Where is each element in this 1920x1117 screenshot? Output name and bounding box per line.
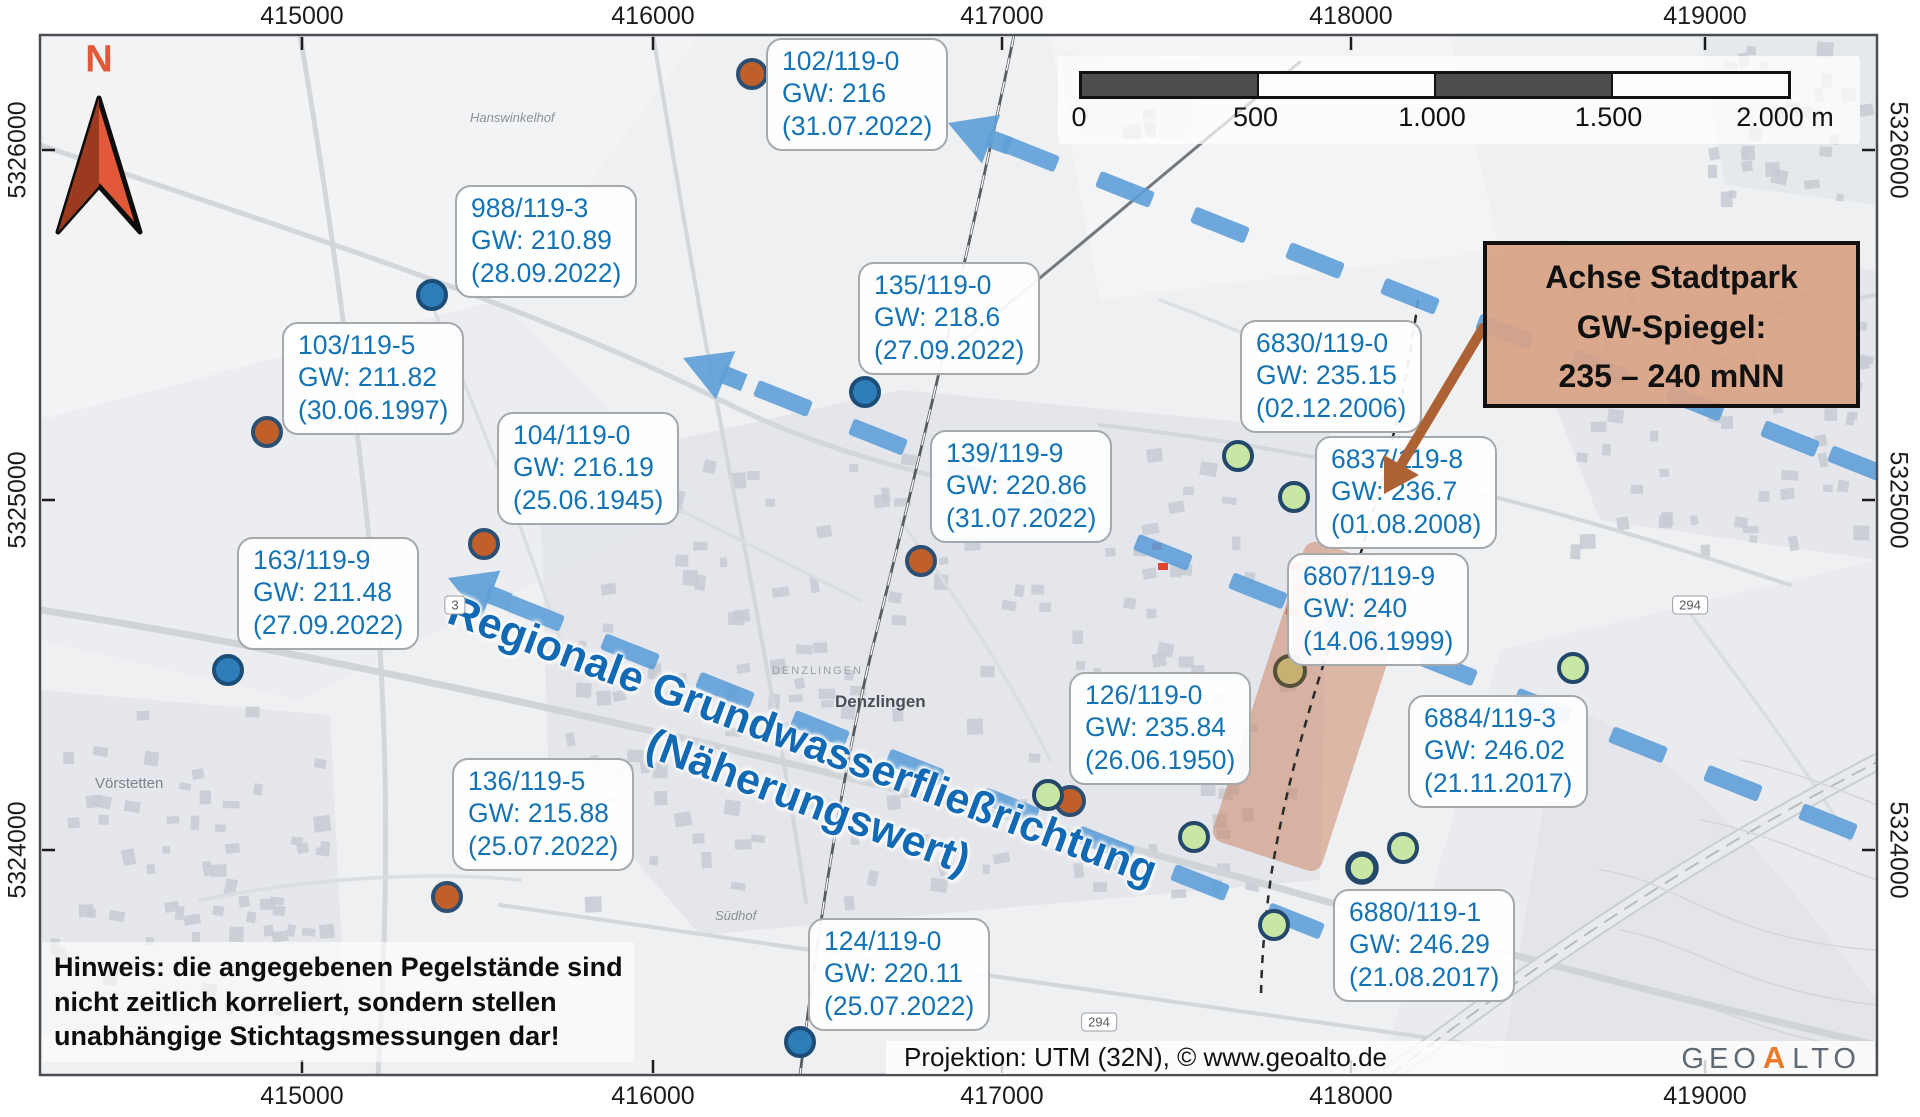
scalebar-segment xyxy=(1259,74,1436,96)
achse-line2: GW-Spiegel: xyxy=(1487,303,1856,353)
axis-x-label: 417000 xyxy=(960,2,1043,31)
station-label: 135/119-0 GW: 218.6 (27.09.2022) xyxy=(858,262,1040,375)
attribution-bar: Projektion: UTM (32N), © www.geoalto.de … xyxy=(886,1041,1875,1074)
projection-attribution: Projektion: UTM (32N), © www.geoalto.de xyxy=(904,1042,1387,1073)
station-label: 103/119-5 GW: 211.82 (30.06.1997) xyxy=(282,322,464,435)
geoalto-logo: GEO A LTO xyxy=(1681,1040,1861,1076)
axis-y-label: 5324000 xyxy=(1884,801,1913,898)
road-badge: 3 xyxy=(444,596,465,615)
station-gw: GW: 246.02 xyxy=(1424,734,1572,766)
achse-stadtpark-box: Achse Stadtpark GW-Spiegel: 235 – 240 mN… xyxy=(1483,241,1860,408)
station-gw: GW: 211.48 xyxy=(253,576,403,608)
station-date: (25.07.2022) xyxy=(468,830,618,862)
station-id: 124/119-0 xyxy=(824,925,974,957)
place-label: Vörstetten xyxy=(95,775,163,792)
station-gw: GW: 211.82 xyxy=(298,361,448,393)
axis-x-label: 418000 xyxy=(1309,2,1392,31)
logo-geo: GEO xyxy=(1681,1043,1760,1076)
station-id: 6807/119-9 xyxy=(1303,560,1453,592)
station-label: 163/119-9 GW: 211.48 (27.09.2022) xyxy=(237,537,419,650)
scalebar-segment xyxy=(1436,74,1613,96)
station-label: 139/119-9 GW: 220.86 (31.07.2022) xyxy=(930,430,1112,543)
station-id: 139/119-9 xyxy=(946,437,1096,469)
station-label: 124/119-0 GW: 220.11 (25.07.2022) xyxy=(808,918,990,1031)
road-badge: 294 xyxy=(1081,1013,1117,1032)
note-line2: nicht zeitlich korreliert, sondern stell… xyxy=(54,985,622,1020)
station-gw: GW: 216 xyxy=(782,77,932,109)
station-label: 126/119-0 GW: 235.84 (26.06.1950) xyxy=(1069,672,1251,785)
station-date: (30.06.1997) xyxy=(298,394,448,426)
axis-x-label: 419000 xyxy=(1663,2,1746,31)
station-date: (01.08.2008) xyxy=(1331,508,1481,540)
station-id: 988/119-3 xyxy=(471,192,621,224)
note-panel: Hinweis: die angegebenen Pegelstände sin… xyxy=(42,942,634,1062)
axis-y-label: 5325000 xyxy=(1884,451,1913,548)
station-label: 6807/119-9 GW: 240 (14.06.1999) xyxy=(1287,553,1469,666)
axis-x-label: 418000 xyxy=(1309,1082,1392,1111)
station-date: (21.08.2017) xyxy=(1349,961,1499,993)
axis-y-label: 5326000 xyxy=(4,101,33,198)
station-id: 104/119-0 xyxy=(513,419,663,451)
station-id: 6837/119-8 xyxy=(1331,443,1481,475)
station-id: 6880/119-1 xyxy=(1349,896,1499,928)
station-label: 136/119-5 GW: 215.88 (25.07.2022) xyxy=(452,758,634,871)
station-date: (25.06.1945) xyxy=(513,484,663,516)
axis-y-label: 5324000 xyxy=(4,801,33,898)
station-gw: GW: 220.11 xyxy=(824,957,974,989)
axis-y-label: 5325000 xyxy=(4,451,33,548)
axis-x-label: 415000 xyxy=(260,2,343,31)
station-date: (31.07.2022) xyxy=(946,502,1096,534)
station-gw: GW: 235.15 xyxy=(1256,359,1406,391)
station-date: (25.07.2022) xyxy=(824,990,974,1022)
station-id: 163/119-9 xyxy=(253,544,403,576)
logo-a-icon: A xyxy=(1763,1040,1790,1076)
scalebar-label: 1.500 xyxy=(1575,102,1643,133)
station-gw: GW: 218.6 xyxy=(874,301,1024,333)
station-gw: GW: 235.84 xyxy=(1085,711,1235,743)
station-label: 6830/119-0 GW: 235.15 (02.12.2006) xyxy=(1240,320,1422,433)
station-gw: GW: 246.29 xyxy=(1349,928,1499,960)
scalebar-segment xyxy=(1082,74,1259,96)
station-date: (31.07.2022) xyxy=(782,110,932,142)
north-label: N xyxy=(85,39,112,82)
note-line1: Hinweis: die angegebenen Pegelstände sin… xyxy=(54,950,622,985)
place-label: DENZLINGEN xyxy=(772,665,863,677)
map-screenshot: N Regionale Grundwasserfließrichtung (Nä… xyxy=(0,0,1920,1117)
station-id: 6884/119-3 xyxy=(1424,702,1572,734)
station-date: (14.06.1999) xyxy=(1303,625,1453,657)
scalebar-label: 2.000 m xyxy=(1736,102,1834,133)
station-label: 6837/119-8 GW: 236.7 (01.08.2008) xyxy=(1315,436,1497,549)
station-id: 136/119-5 xyxy=(468,765,618,797)
station-label: 6880/119-1 GW: 246.29 (21.08.2017) xyxy=(1333,889,1515,1002)
scalebar-bar xyxy=(1079,71,1791,99)
station-label: 102/119-0 GW: 216 (31.07.2022) xyxy=(766,38,948,151)
station-label: 988/119-3 GW: 210.89 (28.09.2022) xyxy=(455,185,637,298)
station-date: (27.09.2022) xyxy=(253,609,403,641)
station-id: 6830/119-0 xyxy=(1256,327,1406,359)
scalebar-segment xyxy=(1613,74,1788,96)
station-date: (02.12.2006) xyxy=(1256,392,1406,424)
station-id: 102/119-0 xyxy=(782,45,932,77)
station-label: 6884/119-3 GW: 246.02 (21.11.2017) xyxy=(1408,695,1588,808)
station-gw: GW: 210.89 xyxy=(471,224,621,256)
station-date: (26.06.1950) xyxy=(1085,744,1235,776)
station-gw: GW: 216.19 xyxy=(513,451,663,483)
station-gw: GW: 236.7 xyxy=(1331,475,1481,507)
achse-line1: Achse Stadtpark xyxy=(1487,253,1856,303)
station-id: 135/119-0 xyxy=(874,269,1024,301)
axis-y-label: 5326000 xyxy=(1884,101,1913,198)
station-date: (28.09.2022) xyxy=(471,257,621,289)
place-label: Hanswinkelhof xyxy=(470,110,555,125)
station-id: 103/119-5 xyxy=(298,329,448,361)
scalebar-label: 500 xyxy=(1233,102,1278,133)
station-date: (21.11.2017) xyxy=(1424,767,1572,799)
axis-x-label: 415000 xyxy=(260,1082,343,1111)
axis-x-label: 416000 xyxy=(611,1082,694,1111)
scalebar-label: 1.000 xyxy=(1398,102,1466,133)
scalebar: 05001.0001.5002.000 m xyxy=(1058,56,1860,144)
place-label: Südhof xyxy=(715,908,756,923)
station-gw: GW: 220.86 xyxy=(946,469,1096,501)
axis-x-label: 417000 xyxy=(960,1082,1043,1111)
note-line3: unabhängige Stichtagsmessungen dar! xyxy=(54,1019,622,1054)
station-id: 126/119-0 xyxy=(1085,679,1235,711)
scalebar-label: 0 xyxy=(1071,102,1086,133)
station-label: 104/119-0 GW: 216.19 (25.06.1945) xyxy=(497,412,679,525)
road-badge: 294 xyxy=(1672,596,1708,615)
station-gw: GW: 240 xyxy=(1303,592,1453,624)
axis-x-label: 419000 xyxy=(1663,1082,1746,1111)
place-label: Denzlingen xyxy=(835,692,926,712)
logo-lto: LTO xyxy=(1792,1043,1861,1076)
station-date: (27.09.2022) xyxy=(874,334,1024,366)
axis-x-label: 416000 xyxy=(611,2,694,31)
station-gw: GW: 215.88 xyxy=(468,797,618,829)
achse-line3: 235 – 240 mNN xyxy=(1487,352,1856,402)
